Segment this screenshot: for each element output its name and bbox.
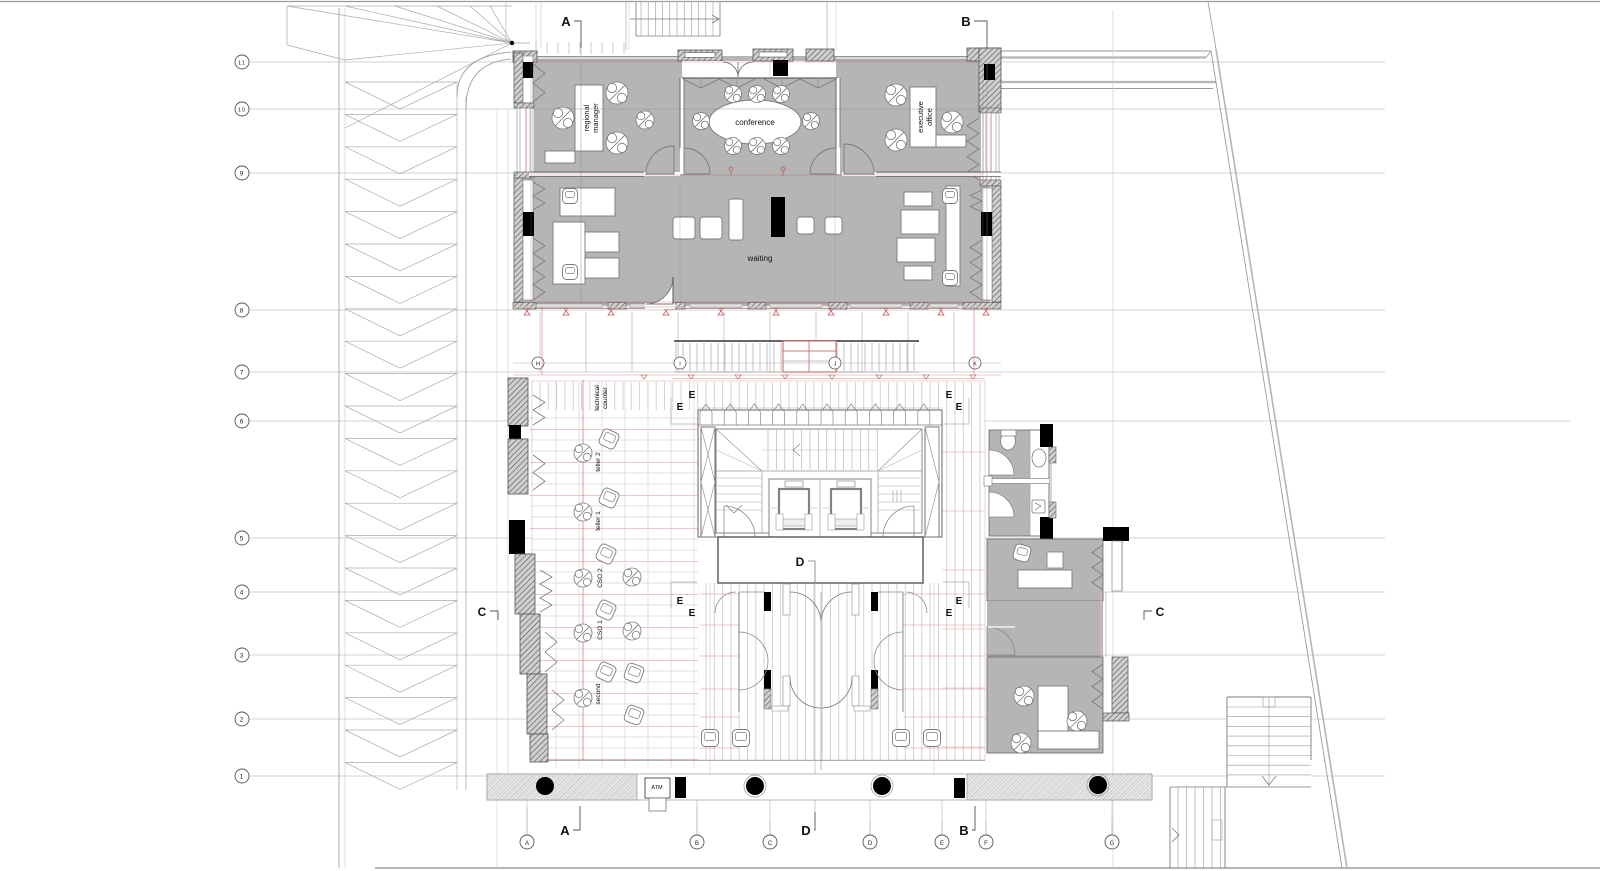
svg-text:6: 6 bbox=[240, 419, 245, 426]
svg-text:A: A bbox=[561, 14, 571, 29]
svg-text:J: J bbox=[834, 362, 837, 368]
svg-text:5: 5 bbox=[240, 536, 245, 543]
svg-text:D: D bbox=[868, 841, 873, 847]
svg-text:11: 11 bbox=[238, 61, 246, 67]
svg-text:ATM: ATM bbox=[651, 785, 663, 791]
svg-text:CSO 2: CSO 2 bbox=[597, 568, 604, 588]
svg-text:D: D bbox=[801, 823, 810, 838]
svg-text:E: E bbox=[946, 608, 953, 619]
svg-text:8: 8 bbox=[240, 308, 245, 315]
svg-text:A: A bbox=[525, 841, 529, 847]
svg-text:B: B bbox=[961, 14, 970, 29]
svg-text:counter: counter bbox=[602, 386, 609, 409]
svg-text:7: 7 bbox=[240, 370, 245, 377]
svg-text:E: E bbox=[689, 390, 696, 401]
svg-text:E: E bbox=[956, 402, 963, 413]
svg-text:manager: manager bbox=[591, 103, 600, 133]
svg-text:E: E bbox=[689, 608, 696, 619]
svg-text:F: F bbox=[984, 841, 988, 847]
svg-text:E: E bbox=[946, 390, 953, 401]
svg-text:10: 10 bbox=[238, 108, 246, 114]
svg-text:conference: conference bbox=[735, 118, 775, 127]
svg-text:B: B bbox=[695, 841, 699, 847]
svg-text:G: G bbox=[1110, 841, 1115, 847]
svg-text:3: 3 bbox=[240, 653, 245, 660]
svg-text:second: second bbox=[595, 683, 602, 704]
svg-text:2: 2 bbox=[240, 717, 245, 724]
svg-text:E: E bbox=[940, 841, 944, 847]
svg-text:A: A bbox=[560, 823, 570, 838]
svg-text:technical: technical bbox=[594, 385, 601, 411]
svg-text:regional: regional bbox=[582, 104, 591, 131]
svg-text:4: 4 bbox=[240, 590, 245, 597]
svg-text:teller 1: teller 1 bbox=[595, 511, 602, 531]
svg-text:CSO 1: CSO 1 bbox=[597, 620, 604, 640]
svg-text:1: 1 bbox=[240, 774, 245, 781]
svg-text:executive: executive bbox=[916, 101, 925, 133]
svg-text:D: D bbox=[796, 555, 805, 569]
svg-text:9: 9 bbox=[240, 171, 245, 178]
svg-text:H: H bbox=[536, 362, 540, 368]
svg-text:B: B bbox=[959, 823, 968, 838]
svg-text:waiting: waiting bbox=[747, 254, 773, 263]
svg-text:E: E bbox=[677, 402, 684, 413]
svg-text:E: E bbox=[956, 596, 963, 607]
svg-text:C: C bbox=[1156, 605, 1165, 619]
svg-text:teller 2: teller 2 bbox=[595, 452, 602, 472]
svg-text:C: C bbox=[478, 605, 487, 619]
svg-text:E: E bbox=[677, 596, 684, 607]
svg-text:C: C bbox=[768, 841, 773, 847]
svg-text:office: office bbox=[925, 108, 934, 126]
